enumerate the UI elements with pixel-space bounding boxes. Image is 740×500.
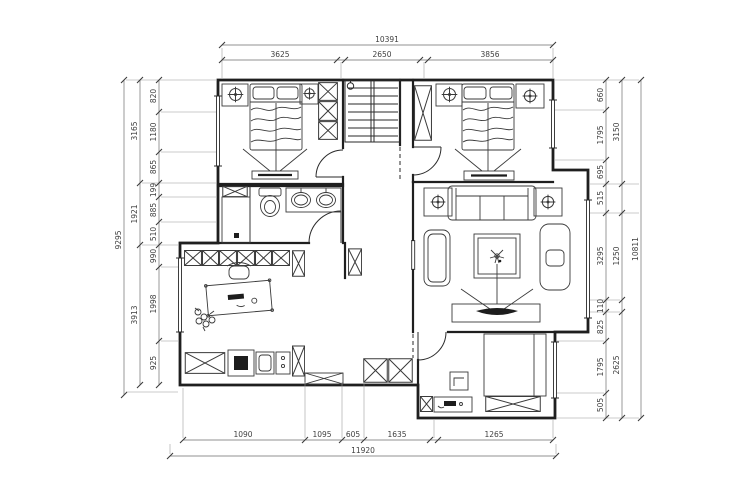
dim-right-inner: 695: [596, 165, 605, 180]
dim-right-total: 10811: [631, 237, 640, 261]
window-bedroom2-right-icon: [549, 100, 557, 148]
tv-stand-icon: [452, 304, 540, 322]
dim-left-inner: 865: [149, 160, 158, 175]
desk-icon: [204, 279, 273, 317]
dim-left-inner: 820: [149, 89, 158, 104]
storage-bench-icon: [486, 396, 541, 411]
dim-bottom-seg: 1090: [233, 430, 252, 439]
double-vanity-icon: [286, 188, 341, 212]
dim-right-inner: 110: [596, 299, 605, 314]
lamp-icon: [228, 87, 244, 103]
dim-left-group: 3913: [130, 305, 139, 324]
dim-right-inner: 515: [596, 191, 605, 206]
dim-top-total: 10391: [375, 35, 399, 44]
plant-icon: [195, 308, 215, 331]
desk-icon: [434, 397, 472, 412]
sofa-icon: [448, 186, 536, 220]
window-bedroom1-left-icon: [214, 96, 222, 166]
dim-right-inner: 825: [596, 320, 605, 335]
dim-bottom-seg: 605: [346, 430, 361, 439]
dim-left-inner: 199: [149, 183, 158, 198]
hall-cabinet-icon: [364, 359, 413, 383]
door-bedroom2-icon: [413, 147, 441, 175]
dim-right-inner: 660: [596, 88, 605, 103]
desk-chair-icon: [227, 263, 251, 280]
bedroom-bottom-right: [420, 334, 546, 412]
wardrobe-icon: [319, 83, 338, 140]
dim-bottom-seg: 1635: [387, 430, 406, 439]
lamp-icon: [303, 87, 315, 99]
dim-right-inner: 505: [596, 398, 605, 413]
dim-left-inner: 510: [149, 227, 158, 242]
lamp-icon: [523, 89, 538, 104]
dim-right-inner: 1795: [596, 125, 605, 144]
entry-step-icon: [305, 373, 343, 384]
bedroom-top-left: [222, 83, 337, 179]
bed-icon: [484, 334, 546, 396]
cabinet-icon: [223, 186, 247, 196]
door-bedroom3-icon: [418, 332, 446, 360]
dim-right-inner: 3295: [596, 246, 605, 265]
dim-left-group: 3165: [130, 121, 139, 140]
dim-right-group: 1250: [612, 246, 621, 265]
bathroom: [222, 186, 341, 243]
tv-bench-icon: [464, 171, 514, 180]
dim-left-inner: 925: [149, 356, 158, 371]
floor-drain-icon: [234, 233, 239, 238]
door-bedroom1-icon: [316, 150, 343, 177]
window-living-right-icon: [584, 200, 592, 318]
study-kitchen: [185, 249, 413, 384]
dimensions: 10391 3625 2650 3856 1090 1095 605 1635 …: [114, 35, 644, 459]
stairs-icon: [345, 80, 400, 142]
tv-bench-icon: [252, 171, 298, 179]
toilet-icon: [259, 188, 281, 217]
window-bedroom3-right-icon: [551, 342, 559, 398]
dim-left-group: 1921: [130, 204, 139, 223]
floor-plan-canvas: 10391 3625 2650 3856 1090 1095 605 1635 …: [0, 0, 740, 500]
cabinet-icon: [420, 396, 432, 411]
wardrobe-icon: [415, 86, 432, 141]
lamp-icon: [442, 87, 458, 103]
dim-right-inner: 1795: [596, 357, 605, 376]
floor-plan-drawing: 10391 3625 2650 3856 1090 1095 605 1635 …: [0, 0, 740, 500]
dim-left-inner: 1180: [149, 122, 158, 141]
window-study-left-icon: [176, 258, 184, 332]
windows: [176, 96, 592, 398]
dim-bottom-seg: 1095: [312, 430, 331, 439]
nightstand: [450, 372, 468, 390]
plant-icon: [490, 250, 504, 263]
dim-top-seg: 3625: [270, 50, 289, 59]
dim-top-seg: 2650: [372, 50, 391, 59]
dim-bottom-seg: 1265: [484, 430, 503, 439]
armchair-icon: [424, 230, 450, 286]
cabinet-row-icon: [185, 249, 362, 276]
tv-sightlines: [243, 149, 307, 171]
dim-left-inner: 1998: [149, 294, 158, 313]
dim-right-group: 2625: [612, 355, 621, 374]
dim-left-inner: 990: [149, 249, 158, 264]
lamp-icon: [431, 195, 446, 210]
dim-left-total: 9295: [114, 230, 123, 249]
dim-left-inner: 885: [149, 203, 158, 218]
dim-bottom-total: 11920: [351, 446, 375, 455]
doors: [309, 147, 446, 360]
recliner-icon: [540, 224, 570, 290]
dim-right-group: 3150: [612, 122, 621, 141]
door-bathroom-icon: [309, 211, 341, 243]
kitchen-counter-icon: [185, 346, 304, 376]
lamp-icon: [541, 195, 556, 210]
living-room: [424, 186, 570, 322]
dim-top-seg: 3856: [480, 50, 499, 59]
